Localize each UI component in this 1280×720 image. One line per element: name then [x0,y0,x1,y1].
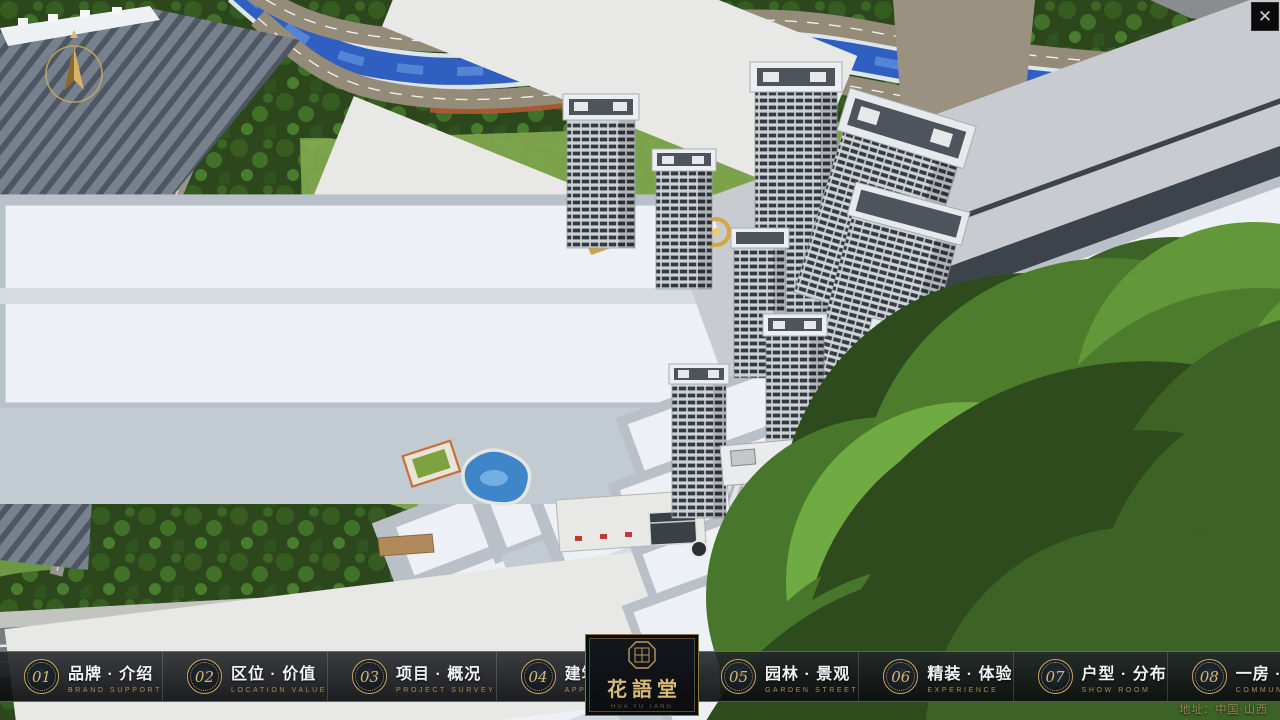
nav-group-left: 01 品牌 · 介绍 BRAND SUPPORT 02 区位 · 价值 LOCA… [0,652,585,701]
nav-caption: PROJECT SURVEY [396,687,496,694]
swimming-pool [465,452,528,502]
project-address: 地址：中国·山西 [1179,701,1268,717]
nav-label: 一房 · 一景 [1236,660,1280,684]
nav-group-right: 05 园林 · 景观 GARDEN STREET 06 精装 · 体验 EXPE… [697,652,1280,701]
nav-item-community[interactable]: 08 一房 · 一景 COMMUNITY [1168,652,1280,701]
nav-label: 精装 · 体验 [927,660,1012,684]
brand-logo-panel[interactable]: 花語堂 HUA YU TANG [585,634,699,716]
close-button[interactable]: ✕ [1251,2,1279,31]
nav-badge-04: 04 [521,659,556,694]
nav-item-brand[interactable]: 01 品牌 · 介绍 BRAND SUPPORT [0,652,163,701]
nav-badge-05: 05 [721,659,756,694]
nav-item-floorplans[interactable]: 07 户型 · 分布 SHOW ROOM [1014,652,1168,701]
nav-label: 项目 · 概况 [396,660,496,684]
nav-badge-03: 03 [352,659,387,694]
nav-caption: COMMUNITY [1236,687,1280,694]
nav-caption: GARDEN STREET [765,687,858,694]
sales-presentation-app: ✕ 01 品牌 · 介绍 BRAND SUPPORT 02 区位 · 价值 LO… [0,0,1280,720]
nav-item-experience[interactable]: 06 精装 · 体验 EXPERIENCE [859,652,1013,701]
nav-badge-02: 02 [187,659,222,694]
masterplan-render [0,0,1280,720]
nav-item-garden[interactable]: 05 园林 · 景观 GARDEN STREET [697,652,859,701]
brand-seal-icon [627,640,657,670]
nav-caption: EXPERIENCE [927,687,1012,694]
nav-caption: LOCATION VALUE [231,687,327,694]
compass-north-indicator [38,28,110,110]
nav-badge-08: 08 [1192,659,1227,694]
nav-caption: BRAND SUPPORT [68,687,162,694]
nav-badge-07: 07 [1038,659,1073,694]
nav-label: 品牌 · 介绍 [68,660,162,684]
nav-caption: SHOW ROOM [1082,687,1167,694]
nav-label: 区位 · 价值 [231,660,327,684]
nav-item-location[interactable]: 02 区位 · 价值 LOCATION VALUE [163,652,328,701]
brand-title: 花語堂 [602,673,682,702]
brand-subtitle: HUA YU TANG [611,704,673,710]
nav-badge-01: 01 [24,659,59,694]
nav-label: 园林 · 景观 [765,660,858,684]
nav-badge-06: 06 [883,659,918,694]
nav-item-project[interactable]: 03 项目 · 概况 PROJECT SURVEY [328,652,497,701]
nav-label: 户型 · 分布 [1082,660,1167,684]
